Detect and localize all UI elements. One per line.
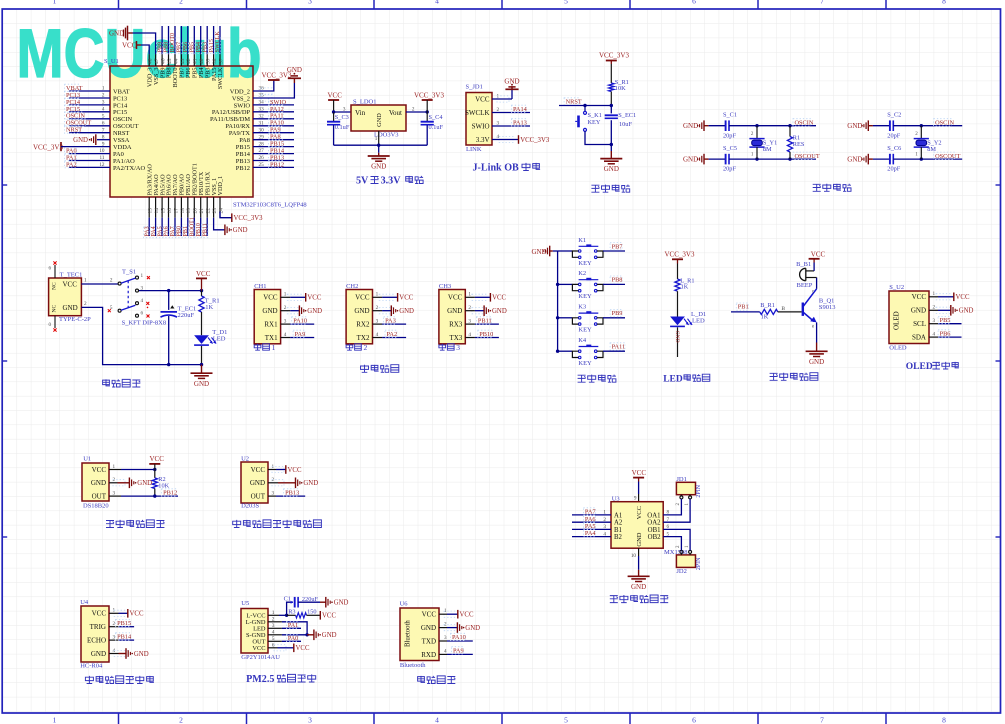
- svg-text:PA9: PA9: [295, 331, 306, 338]
- svg-text:GP2Y1014AU: GP2Y1014AU: [241, 654, 280, 661]
- svg-text:VCC: VCC: [251, 466, 266, 474]
- svg-text:K1: K1: [578, 237, 586, 244]
- svg-text:GND: GND: [683, 122, 698, 130]
- svg-text:PB14: PB14: [117, 634, 132, 641]
- svg-text:OUT: OUT: [251, 493, 266, 501]
- svg-text:JD2: JD2: [676, 568, 686, 575]
- svg-text:GND: GND: [91, 650, 106, 658]
- svg-text:2: 2: [364, 343, 368, 352]
- svg-text:3: 3: [343, 106, 346, 112]
- svg-text:1: 1: [141, 273, 144, 279]
- svg-text:S_EC1: S_EC1: [618, 112, 636, 119]
- svg-text:8M: 8M: [927, 146, 936, 153]
- svg-text:4: 4: [141, 298, 144, 304]
- svg-text:2: 2: [179, 715, 183, 724]
- svg-text:PB5: PB5: [190, 42, 196, 52]
- svg-text:BEEP: BEEP: [797, 282, 813, 289]
- svg-text:B2: B2: [614, 534, 623, 541]
- svg-text:GND: GND: [287, 66, 302, 74]
- svg-text:OLED: OLED: [893, 311, 901, 330]
- svg-text:PA14: PA14: [513, 106, 528, 113]
- svg-text:PM2.5: PM2.5: [246, 674, 274, 685]
- svg-text:150: 150: [307, 609, 316, 616]
- svg-text:VDDA: VDDA: [113, 144, 132, 151]
- svg-text:C1: C1: [284, 595, 291, 602]
- svg-text:PB6: PB6: [183, 42, 189, 52]
- svg-text:0.1uF: 0.1uF: [335, 124, 350, 131]
- svg-text:20pF: 20pF: [723, 133, 736, 140]
- svg-text:B_B1: B_B1: [796, 261, 811, 268]
- svg-text:OA1: OA1: [647, 512, 660, 519]
- svg-text:6: 6: [141, 310, 144, 316]
- svg-text:GND: GND: [683, 156, 698, 164]
- svg-text:SDA: SDA: [912, 334, 926, 342]
- svg-text:KEY: KEY: [578, 360, 592, 367]
- svg-text:VCC: VCC: [956, 294, 970, 301]
- svg-text:41: 41: [193, 58, 199, 64]
- svg-text:GND: GND: [137, 480, 152, 487]
- svg-text:GND: GND: [604, 165, 619, 173]
- svg-text:STM32F103C8T6_LQFP48: STM32F103C8T6_LQFP48: [233, 201, 307, 208]
- svg-text:2: 2: [110, 278, 113, 284]
- svg-text:R3: R3: [288, 609, 295, 616]
- svg-text:19: 19: [186, 208, 192, 214]
- svg-text:PB7: PB7: [177, 42, 183, 52]
- svg-text:SWCLK: SWCLK: [215, 31, 221, 53]
- svg-text:MCUclub: MCUclub: [17, 16, 262, 93]
- svg-text:PC15: PC15: [113, 109, 127, 116]
- svg-text:VDD_1: VDD_1: [217, 176, 224, 196]
- svg-text:VCC: VCC: [912, 293, 927, 301]
- svg-text:GND: GND: [631, 583, 646, 591]
- svg-text:3: 3: [456, 343, 460, 352]
- svg-text:7: 7: [820, 0, 824, 5]
- svg-text:GND: GND: [465, 625, 480, 632]
- svg-text:GND: GND: [636, 532, 643, 546]
- svg-text:38: 38: [212, 58, 218, 64]
- svg-text:PB8: PB8: [612, 277, 623, 284]
- svg-text:S9013: S9013: [819, 304, 836, 311]
- svg-text:VCC_3V3: VCC_3V3: [599, 52, 629, 60]
- svg-text:GND: GND: [376, 113, 383, 127]
- svg-text:VCC: VCC: [399, 295, 413, 302]
- svg-text:U5: U5: [241, 600, 249, 607]
- svg-text:GND: GND: [959, 308, 974, 315]
- svg-text:Vin: Vin: [355, 109, 366, 117]
- svg-text:GND: GND: [532, 248, 547, 256]
- svg-text:VCC: VCC: [328, 92, 343, 100]
- svg-text:TXD: TXD: [422, 638, 436, 646]
- svg-text:4: 4: [444, 648, 447, 654]
- svg-text:VCC: VCC: [422, 611, 437, 619]
- svg-text:PB11: PB11: [202, 223, 208, 236]
- svg-text:VCC: VCC: [475, 95, 490, 103]
- svg-text:VCC: VCC: [122, 42, 137, 50]
- svg-text:U1: U1: [83, 456, 91, 463]
- svg-text:OSCIN: OSCIN: [935, 119, 954, 126]
- svg-text:GND: GND: [250, 479, 265, 487]
- svg-text:5: 5: [564, 0, 568, 5]
- svg-text:PB12: PB12: [163, 490, 177, 497]
- svg-text:VCC: VCC: [460, 612, 474, 619]
- svg-text:PA2: PA2: [387, 331, 398, 338]
- svg-text:SWIO: SWIO: [472, 122, 490, 130]
- svg-text:GND: GND: [399, 308, 414, 315]
- svg-text:1: 1: [84, 278, 87, 284]
- svg-text:10K: 10K: [158, 483, 169, 490]
- svg-text:BOOT1: BOOT1: [190, 217, 196, 236]
- svg-text:KEY: KEY: [578, 260, 592, 267]
- svg-text:PB1: PB1: [183, 226, 189, 236]
- svg-text:GND: GND: [194, 380, 209, 388]
- svg-text:VCC: VCC: [288, 467, 302, 474]
- svg-text:20pF: 20pF: [887, 165, 900, 172]
- svg-text:VCC: VCC: [811, 251, 826, 259]
- svg-text:GND: GND: [674, 331, 680, 343]
- svg-text:B: B: [781, 306, 785, 312]
- svg-text:GND: GND: [134, 651, 149, 658]
- svg-text:PA15: PA15: [209, 39, 215, 52]
- svg-text:2: 2: [84, 301, 87, 307]
- svg-text:PA0: PA0: [288, 636, 298, 642]
- svg-text:K2: K2: [578, 270, 586, 277]
- svg-text:PB12: PB12: [270, 161, 284, 168]
- svg-text:VCC_3V3: VCC_3V3: [414, 92, 444, 100]
- svg-text:GND: GND: [371, 163, 386, 171]
- svg-text:PB1: PB1: [738, 304, 749, 311]
- svg-text:ECHO: ECHO: [87, 637, 106, 645]
- svg-text:GND: GND: [233, 227, 248, 234]
- svg-text:1K: 1K: [761, 314, 769, 321]
- svg-text:GND: GND: [421, 624, 436, 632]
- svg-text:VCC: VCC: [296, 645, 310, 652]
- svg-text:1: 1: [375, 136, 378, 142]
- svg-text:VCC: VCC: [196, 270, 211, 278]
- svg-text:0.1uF: 0.1uF: [429, 124, 444, 131]
- svg-text:PA9: PA9: [453, 647, 464, 654]
- svg-text:1K: 1K: [205, 304, 213, 311]
- svg-text:21: 21: [199, 208, 205, 214]
- svg-text:TX1: TX1: [265, 334, 278, 342]
- svg-text:TYPE-C-2P: TYPE-C-2P: [59, 316, 91, 323]
- svg-text:NRST: NRST: [566, 99, 582, 106]
- svg-text:PA3: PA3: [385, 318, 396, 325]
- svg-text:20pF: 20pF: [723, 165, 736, 172]
- svg-text:OUT: OUT: [92, 493, 107, 501]
- svg-text:4: 4: [435, 715, 439, 724]
- svg-text:8: 8: [942, 0, 946, 5]
- svg-text:PA11/USB/DM: PA11/USB/DM: [210, 116, 250, 123]
- svg-text:3.3V: 3.3V: [476, 136, 490, 144]
- svg-text:46: 46: [161, 58, 167, 64]
- svg-text:S_U2: S_U2: [889, 284, 904, 291]
- svg-text:PA7: PA7: [585, 509, 596, 516]
- svg-text:10uF: 10uF: [619, 121, 632, 128]
- svg-text:VCC: VCC: [492, 295, 506, 302]
- svg-text:NC: NC: [52, 282, 58, 290]
- svg-text:VCC: VCC: [150, 455, 165, 463]
- svg-text:PB12: PB12: [236, 165, 250, 172]
- svg-text:VBAT: VBAT: [113, 88, 130, 95]
- svg-text:GND: GND: [447, 307, 462, 315]
- svg-text:42: 42: [186, 58, 192, 64]
- svg-text:47: 47: [154, 58, 160, 64]
- svg-text:PB0: PB0: [177, 226, 183, 236]
- svg-text:PB8: PB8: [164, 42, 170, 52]
- svg-text:2PIN: 2PIN: [696, 484, 702, 497]
- svg-text:5: 5: [564, 715, 568, 724]
- svg-text:VCC: VCC: [63, 281, 78, 289]
- svg-text:GND: GND: [91, 479, 106, 487]
- svg-text:PB15: PB15: [117, 620, 131, 627]
- svg-text:VCC_3V3: VCC_3V3: [234, 215, 264, 222]
- svg-text:KEY: KEY: [588, 119, 601, 126]
- svg-text:PB13: PB13: [285, 490, 299, 497]
- svg-text:PA12/USB/DP: PA12/USB/DP: [212, 109, 251, 116]
- svg-text:OSCOUT: OSCOUT: [935, 153, 960, 160]
- svg-text:T_S1: T_S1: [122, 269, 136, 276]
- svg-text:48: 48: [148, 58, 154, 64]
- svg-text:KEY: KEY: [578, 327, 592, 334]
- svg-text:PB6: PB6: [940, 331, 951, 338]
- svg-text:RXD: RXD: [421, 651, 436, 659]
- svg-text:VCC_3V3: VCC_3V3: [665, 251, 695, 259]
- svg-text:3.3V: 3.3V: [381, 176, 402, 187]
- svg-text:GND: GND: [73, 137, 88, 144]
- svg-text:OA2: OA2: [647, 520, 661, 527]
- svg-text:VDD_2: VDD_2: [230, 88, 250, 95]
- svg-text:PB7: PB7: [612, 243, 623, 250]
- svg-text:OB1: OB1: [648, 527, 661, 534]
- svg-text:B_R1: B_R1: [760, 302, 775, 309]
- svg-text:NRST: NRST: [113, 130, 129, 137]
- svg-text:D203S: D203S: [241, 503, 259, 510]
- svg-text:RX1: RX1: [264, 321, 278, 329]
- svg-text:GND: GND: [303, 480, 318, 487]
- svg-text:U6: U6: [400, 601, 409, 608]
- svg-text:6: 6: [692, 0, 696, 5]
- svg-text:43: 43: [180, 58, 186, 64]
- svg-text:S_C1: S_C1: [723, 112, 737, 119]
- svg-text:VCC: VCC: [130, 611, 144, 618]
- svg-text:J-Link OB: J-Link OB: [473, 163, 520, 174]
- svg-text:3: 3: [308, 715, 312, 724]
- svg-text:GND: GND: [334, 600, 349, 607]
- svg-text:DS18B20: DS18B20: [83, 503, 109, 510]
- svg-text:2PIN: 2PIN: [696, 557, 702, 570]
- svg-text:S_C6: S_C6: [887, 145, 901, 152]
- svg-text:1K: 1K: [681, 284, 689, 291]
- svg-text:VCC: VCC: [636, 506, 643, 519]
- svg-text:OLED: OLED: [889, 344, 907, 351]
- svg-text:GND: GND: [262, 307, 277, 315]
- svg-text:U4: U4: [80, 599, 89, 606]
- svg-text:A1: A1: [614, 512, 622, 519]
- svg-text:VCC: VCC: [448, 294, 463, 302]
- svg-text:PA9/TX: PA9/TX: [229, 130, 250, 137]
- svg-text:TX3: TX3: [449, 334, 462, 342]
- svg-text:PA7: PA7: [170, 226, 176, 236]
- svg-text:13: 13: [148, 208, 154, 214]
- svg-text:PB10: PB10: [479, 331, 493, 338]
- svg-text:9: 9: [634, 496, 637, 502]
- svg-text:PA2/TX/AO: PA2/TX/AO: [113, 165, 145, 172]
- svg-text:PB9: PB9: [612, 310, 623, 317]
- svg-text:HC-R04: HC-R04: [80, 663, 103, 670]
- svg-text:S_LDO1: S_LDO1: [353, 99, 376, 106]
- svg-text:RX3: RX3: [449, 321, 463, 329]
- svg-text:K3: K3: [578, 304, 586, 311]
- svg-text:VCC: VCC: [92, 466, 107, 474]
- svg-text:LDO3V3: LDO3V3: [374, 131, 399, 138]
- svg-text:Vout: Vout: [389, 109, 402, 117]
- svg-text:15: 15: [161, 208, 167, 214]
- svg-text:GND: GND: [307, 308, 322, 315]
- svg-text:22: 22: [206, 208, 212, 214]
- svg-text:20pF: 20pF: [887, 133, 900, 140]
- svg-text:23: 23: [212, 208, 218, 214]
- svg-text:PA5: PA5: [585, 523, 596, 530]
- svg-text:PB11: PB11: [478, 318, 492, 325]
- svg-text:LED: LED: [213, 336, 226, 343]
- svg-text:GND: GND: [354, 307, 369, 315]
- svg-text:7: 7: [820, 715, 824, 724]
- svg-text:GND: GND: [63, 304, 78, 312]
- svg-text:SCL: SCL: [913, 320, 926, 328]
- svg-text:1: 1: [53, 715, 57, 724]
- svg-text:3: 3: [444, 635, 447, 641]
- svg-text:GND: GND: [322, 632, 337, 639]
- svg-text:GND: GND: [504, 78, 519, 86]
- svg-text:A2: A2: [614, 520, 623, 527]
- svg-text:TRIG: TRIG: [90, 623, 106, 631]
- svg-text:GND: GND: [911, 307, 926, 315]
- svg-text:TX2: TX2: [357, 334, 370, 342]
- svg-text:24: 24: [218, 208, 224, 214]
- svg-text:2: 2: [113, 621, 116, 627]
- svg-text:VCC: VCC: [322, 613, 336, 620]
- svg-text:20: 20: [193, 208, 199, 214]
- svg-text:PB9: PB9: [157, 42, 163, 52]
- svg-text:OSCIN: OSCIN: [113, 116, 133, 123]
- svg-text:S_KFT DIP-8X8: S_KFT DIP-8X8: [122, 319, 166, 326]
- svg-text:37: 37: [218, 58, 224, 64]
- svg-text:45: 45: [167, 58, 173, 64]
- svg-text:3: 3: [308, 0, 312, 5]
- svg-text:PA4: PA4: [585, 530, 596, 537]
- svg-text:RX2: RX2: [356, 321, 370, 329]
- svg-text:BOOT0: BOOT0: [170, 33, 176, 52]
- svg-text:PB3: PB3: [202, 42, 208, 52]
- svg-text:Bluetooth: Bluetooth: [405, 620, 412, 647]
- svg-text:NC: NC: [52, 305, 58, 313]
- svg-text:NRST: NRST: [66, 127, 82, 134]
- svg-text:2: 2: [412, 106, 415, 112]
- svg-text:VCC: VCC: [92, 610, 107, 618]
- svg-text:PB5: PB5: [940, 317, 951, 324]
- svg-text:S_C4: S_C4: [429, 114, 444, 121]
- svg-text:LINK: LINK: [466, 146, 482, 153]
- svg-text:PA1: PA1: [288, 623, 298, 629]
- svg-text:GND: GND: [809, 358, 824, 366]
- svg-text:SWCLK: SWCLK: [217, 67, 224, 89]
- svg-text:PB15: PB15: [236, 144, 250, 151]
- svg-text:14: 14: [154, 208, 160, 214]
- svg-text:LED: LED: [692, 317, 705, 324]
- svg-text:5V: 5V: [356, 176, 369, 187]
- svg-text:1: 1: [53, 0, 57, 5]
- svg-text:17: 17: [173, 208, 179, 214]
- svg-text:LED: LED: [663, 374, 683, 384]
- svg-text:2: 2: [179, 0, 183, 5]
- svg-text:GND: GND: [847, 156, 862, 164]
- svg-text:PB4: PB4: [196, 42, 202, 52]
- svg-text:B1: B1: [614, 527, 622, 534]
- svg-text:S_JD1: S_JD1: [466, 84, 483, 91]
- svg-text:1: 1: [272, 343, 276, 352]
- svg-text:PA5: PA5: [157, 226, 163, 236]
- svg-text:VCC: VCC: [307, 295, 321, 302]
- svg-text:GND: GND: [847, 122, 862, 130]
- svg-text:KEY: KEY: [578, 293, 592, 300]
- svg-text:OSCIN: OSCIN: [795, 119, 814, 126]
- svg-text:OLED: OLED: [906, 362, 933, 372]
- svg-text:OB2: OB2: [648, 534, 661, 541]
- svg-text:4: 4: [435, 0, 439, 5]
- svg-text:PA4: PA4: [151, 226, 157, 236]
- svg-text:8: 8: [942, 715, 946, 724]
- svg-text:K4: K4: [578, 337, 587, 344]
- svg-text:44: 44: [173, 58, 179, 64]
- svg-text:VCC_3V3: VCC_3V3: [520, 137, 550, 144]
- svg-text:8M: 8M: [763, 146, 772, 153]
- svg-text:PA6: PA6: [164, 226, 170, 236]
- svg-text:18: 18: [180, 208, 186, 214]
- svg-text:PA10: PA10: [452, 634, 466, 641]
- svg-text:SWCLK: SWCLK: [465, 109, 490, 117]
- svg-text:Bluetooth: Bluetooth: [400, 662, 426, 669]
- svg-text:220uF: 220uF: [178, 312, 195, 319]
- svg-text:PB10: PB10: [196, 223, 202, 236]
- svg-text:RES: RES: [793, 141, 805, 148]
- svg-text:VCC: VCC: [355, 294, 370, 302]
- svg-text:VCC: VCC: [252, 645, 265, 652]
- svg-text:VCC: VCC: [263, 294, 278, 302]
- svg-text:VCC: VCC: [632, 469, 647, 477]
- svg-text:GND: GND: [492, 308, 507, 315]
- svg-text:S_C2: S_C2: [887, 112, 901, 119]
- svg-text:PA13: PA13: [513, 119, 527, 126]
- svg-text:PA11: PA11: [612, 344, 626, 351]
- svg-text:PA6: PA6: [585, 516, 596, 523]
- svg-text:10: 10: [631, 553, 637, 559]
- svg-text:40: 40: [199, 58, 205, 64]
- svg-text:S_C5: S_C5: [723, 145, 737, 152]
- svg-text:PA2: PA2: [66, 161, 77, 168]
- svg-text:10K: 10K: [615, 85, 626, 92]
- svg-text:PA10: PA10: [293, 318, 307, 325]
- svg-text:6: 6: [692, 715, 696, 724]
- svg-text:OSCOUT: OSCOUT: [795, 153, 820, 160]
- svg-text:PA3: PA3: [144, 226, 150, 236]
- svg-text:39: 39: [206, 58, 212, 64]
- svg-text:16: 16: [167, 208, 173, 214]
- svg-text:VCC_3V3: VCC_3V3: [33, 143, 63, 151]
- svg-text:GND: GND: [109, 29, 124, 37]
- svg-text:S_C3: S_C3: [335, 114, 349, 121]
- svg-text:S_U1: S_U1: [104, 58, 119, 65]
